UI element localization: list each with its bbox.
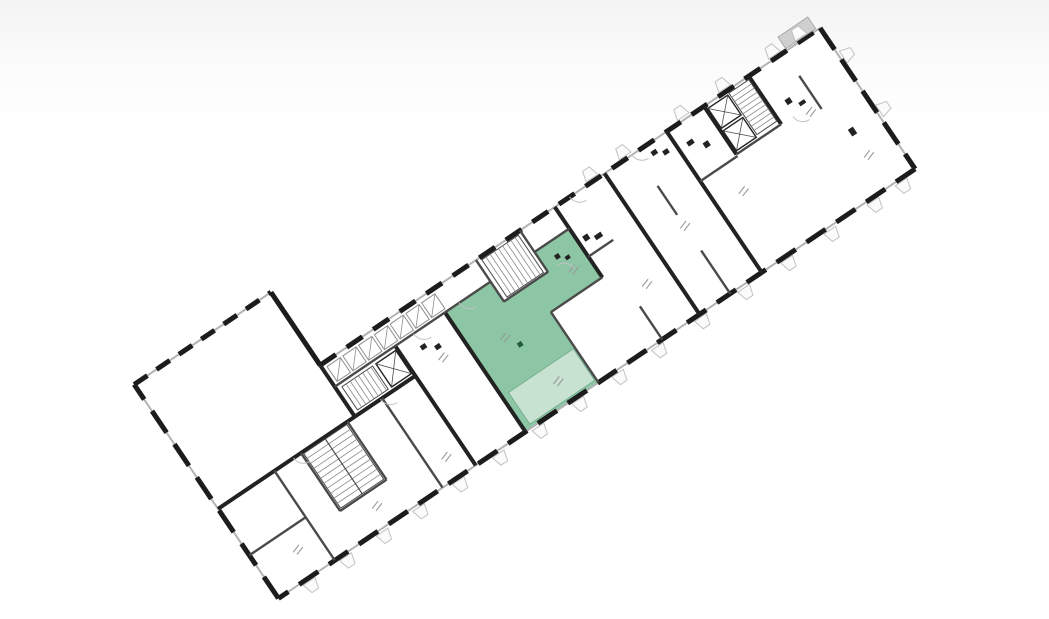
floorplan-svg <box>0 0 1049 619</box>
building-group <box>134 0 934 610</box>
floorplan-canvas <box>0 0 1049 619</box>
